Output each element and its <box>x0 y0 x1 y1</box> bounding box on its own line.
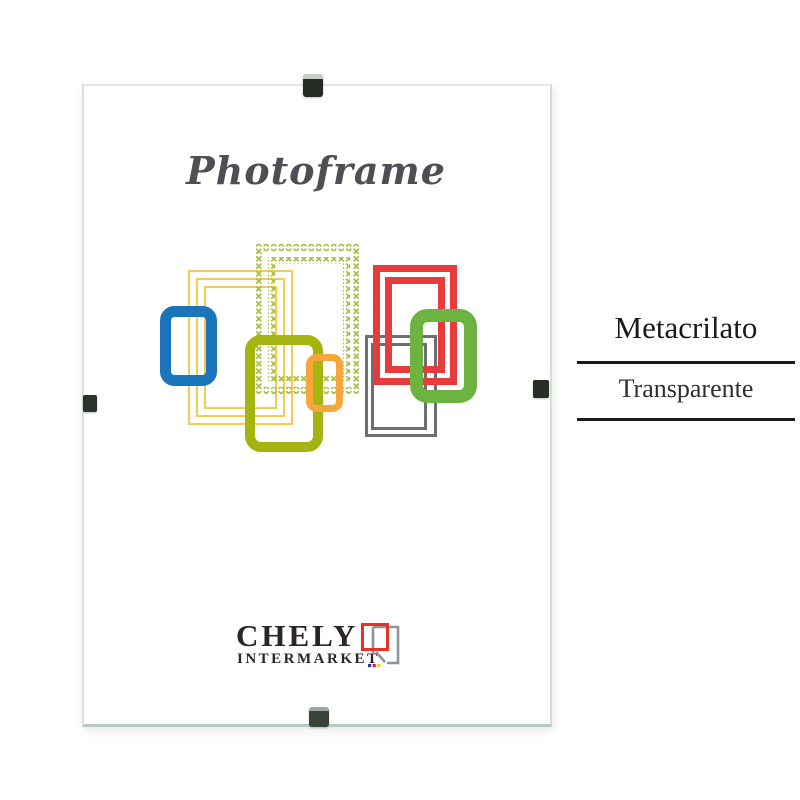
logo-frame-gray-icon <box>373 627 398 663</box>
retaining-clip-left <box>83 395 97 412</box>
spec-divider-top <box>577 361 795 364</box>
logo-dot-blue-icon <box>368 664 371 667</box>
spec-divider-bottom <box>577 418 795 421</box>
decorative-frames-art <box>150 238 490 463</box>
retaining-clip-top <box>303 74 323 97</box>
retaining-clip-right <box>533 380 549 398</box>
retaining-clip-bottom <box>309 707 329 727</box>
brand-logo-mark <box>359 620 401 670</box>
logo-dot-yellow-icon <box>377 664 380 667</box>
product-image: Photoframe CHELY INTERMARKET <box>0 0 800 800</box>
spec-material-label: Metacrilato <box>577 310 795 346</box>
spec-finish-label: Transparente <box>577 374 795 404</box>
brand-name: CHELY <box>236 618 358 654</box>
photoframe-script-title: Photoframe <box>166 148 466 193</box>
logo-dot-red-icon <box>373 664 376 667</box>
